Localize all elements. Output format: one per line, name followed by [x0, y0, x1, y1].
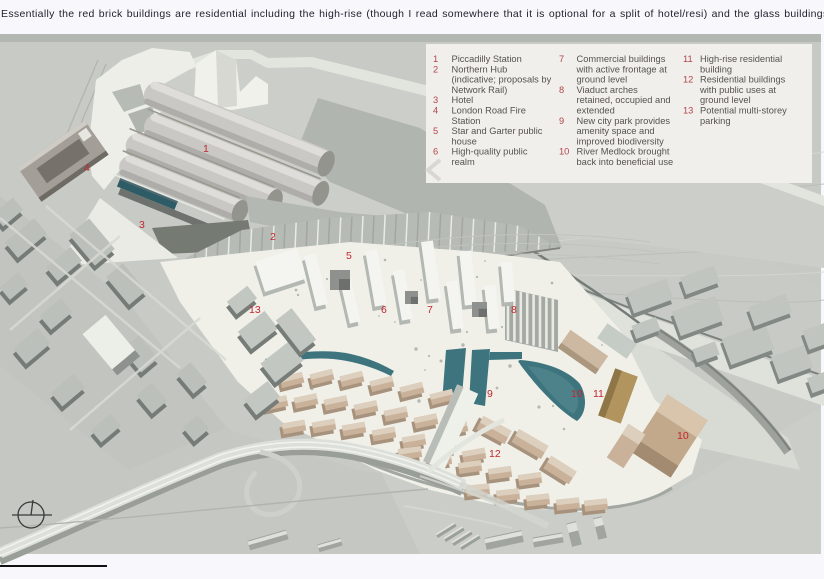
svg-text:11: 11 — [593, 388, 604, 400]
svg-text:8: 8 — [559, 85, 564, 95]
svg-text:6: 6 — [381, 304, 387, 316]
svg-text:7: 7 — [427, 304, 433, 316]
svg-text:ground level: ground level — [700, 95, 751, 105]
svg-text:10: 10 — [571, 388, 583, 400]
svg-text:1: 1 — [203, 143, 209, 155]
svg-text:4: 4 — [84, 162, 90, 174]
svg-text:improved biodiversity: improved biodiversity — [577, 136, 665, 146]
svg-text:8: 8 — [511, 304, 517, 316]
svg-text:12: 12 — [683, 75, 693, 85]
svg-text:Residential buildings: Residential buildings — [700, 75, 786, 85]
svg-text:parking: parking — [700, 116, 731, 126]
svg-text:13: 13 — [683, 106, 693, 116]
svg-text:(indicative; proposals by: (indicative; proposals by — [452, 75, 552, 85]
svg-text:10: 10 — [559, 147, 569, 157]
svg-text:13: 13 — [249, 304, 261, 316]
svg-text:4: 4 — [433, 106, 438, 116]
svg-text:2: 2 — [270, 231, 276, 243]
svg-text:amenity space and: amenity space and — [577, 126, 655, 136]
svg-text:with active frontage at: with active frontage at — [576, 64, 668, 74]
svg-text:Hotel: Hotel — [452, 95, 474, 105]
svg-text:Piccadilly Station: Piccadilly Station — [452, 54, 522, 64]
svg-text:building: building — [700, 64, 732, 74]
svg-text:house: house — [452, 136, 477, 146]
svg-text:9: 9 — [559, 116, 564, 126]
svg-text:2: 2 — [433, 64, 438, 74]
svg-text:7: 7 — [559, 54, 564, 64]
svg-text:extended: extended — [577, 106, 615, 116]
svg-text:High-quality public: High-quality public — [452, 147, 528, 157]
svg-text:9: 9 — [487, 388, 493, 400]
svg-text:New city park provides: New city park provides — [577, 116, 671, 126]
svg-text:London Road Fire: London Road Fire — [452, 106, 526, 116]
svg-text:Northern Hub: Northern Hub — [452, 64, 508, 74]
svg-text:3: 3 — [139, 219, 145, 231]
svg-text:Star and Garter public: Star and Garter public — [452, 126, 543, 136]
svg-text:3: 3 — [433, 95, 438, 105]
svg-text:12: 12 — [489, 448, 501, 460]
svg-text:Potential multi-storey: Potential multi-storey — [700, 106, 787, 116]
svg-text:with public uses at: with public uses at — [699, 85, 776, 95]
svg-text:10: 10 — [677, 430, 689, 442]
svg-text:Station: Station — [452, 116, 481, 126]
svg-text:6: 6 — [433, 147, 438, 157]
svg-text:5: 5 — [346, 250, 352, 262]
svg-text:High-rise residential: High-rise residential — [700, 54, 782, 64]
svg-text:River Medlock brought: River Medlock brought — [577, 147, 670, 157]
svg-text:5: 5 — [433, 126, 438, 136]
svg-text:Commercial buildings: Commercial buildings — [577, 54, 666, 64]
svg-text:11: 11 — [683, 54, 693, 64]
svg-text:Viaduct arches: Viaduct arches — [577, 85, 639, 95]
svg-text:realm: realm — [452, 157, 476, 167]
svg-text:Network Rail): Network Rail) — [452, 85, 508, 95]
svg-text:back into beneficial use: back into beneficial use — [577, 157, 674, 167]
svg-text:ground level: ground level — [577, 75, 628, 85]
svg-text:retained, occupied and: retained, occupied and — [577, 95, 671, 105]
svg-text:1: 1 — [433, 54, 438, 64]
